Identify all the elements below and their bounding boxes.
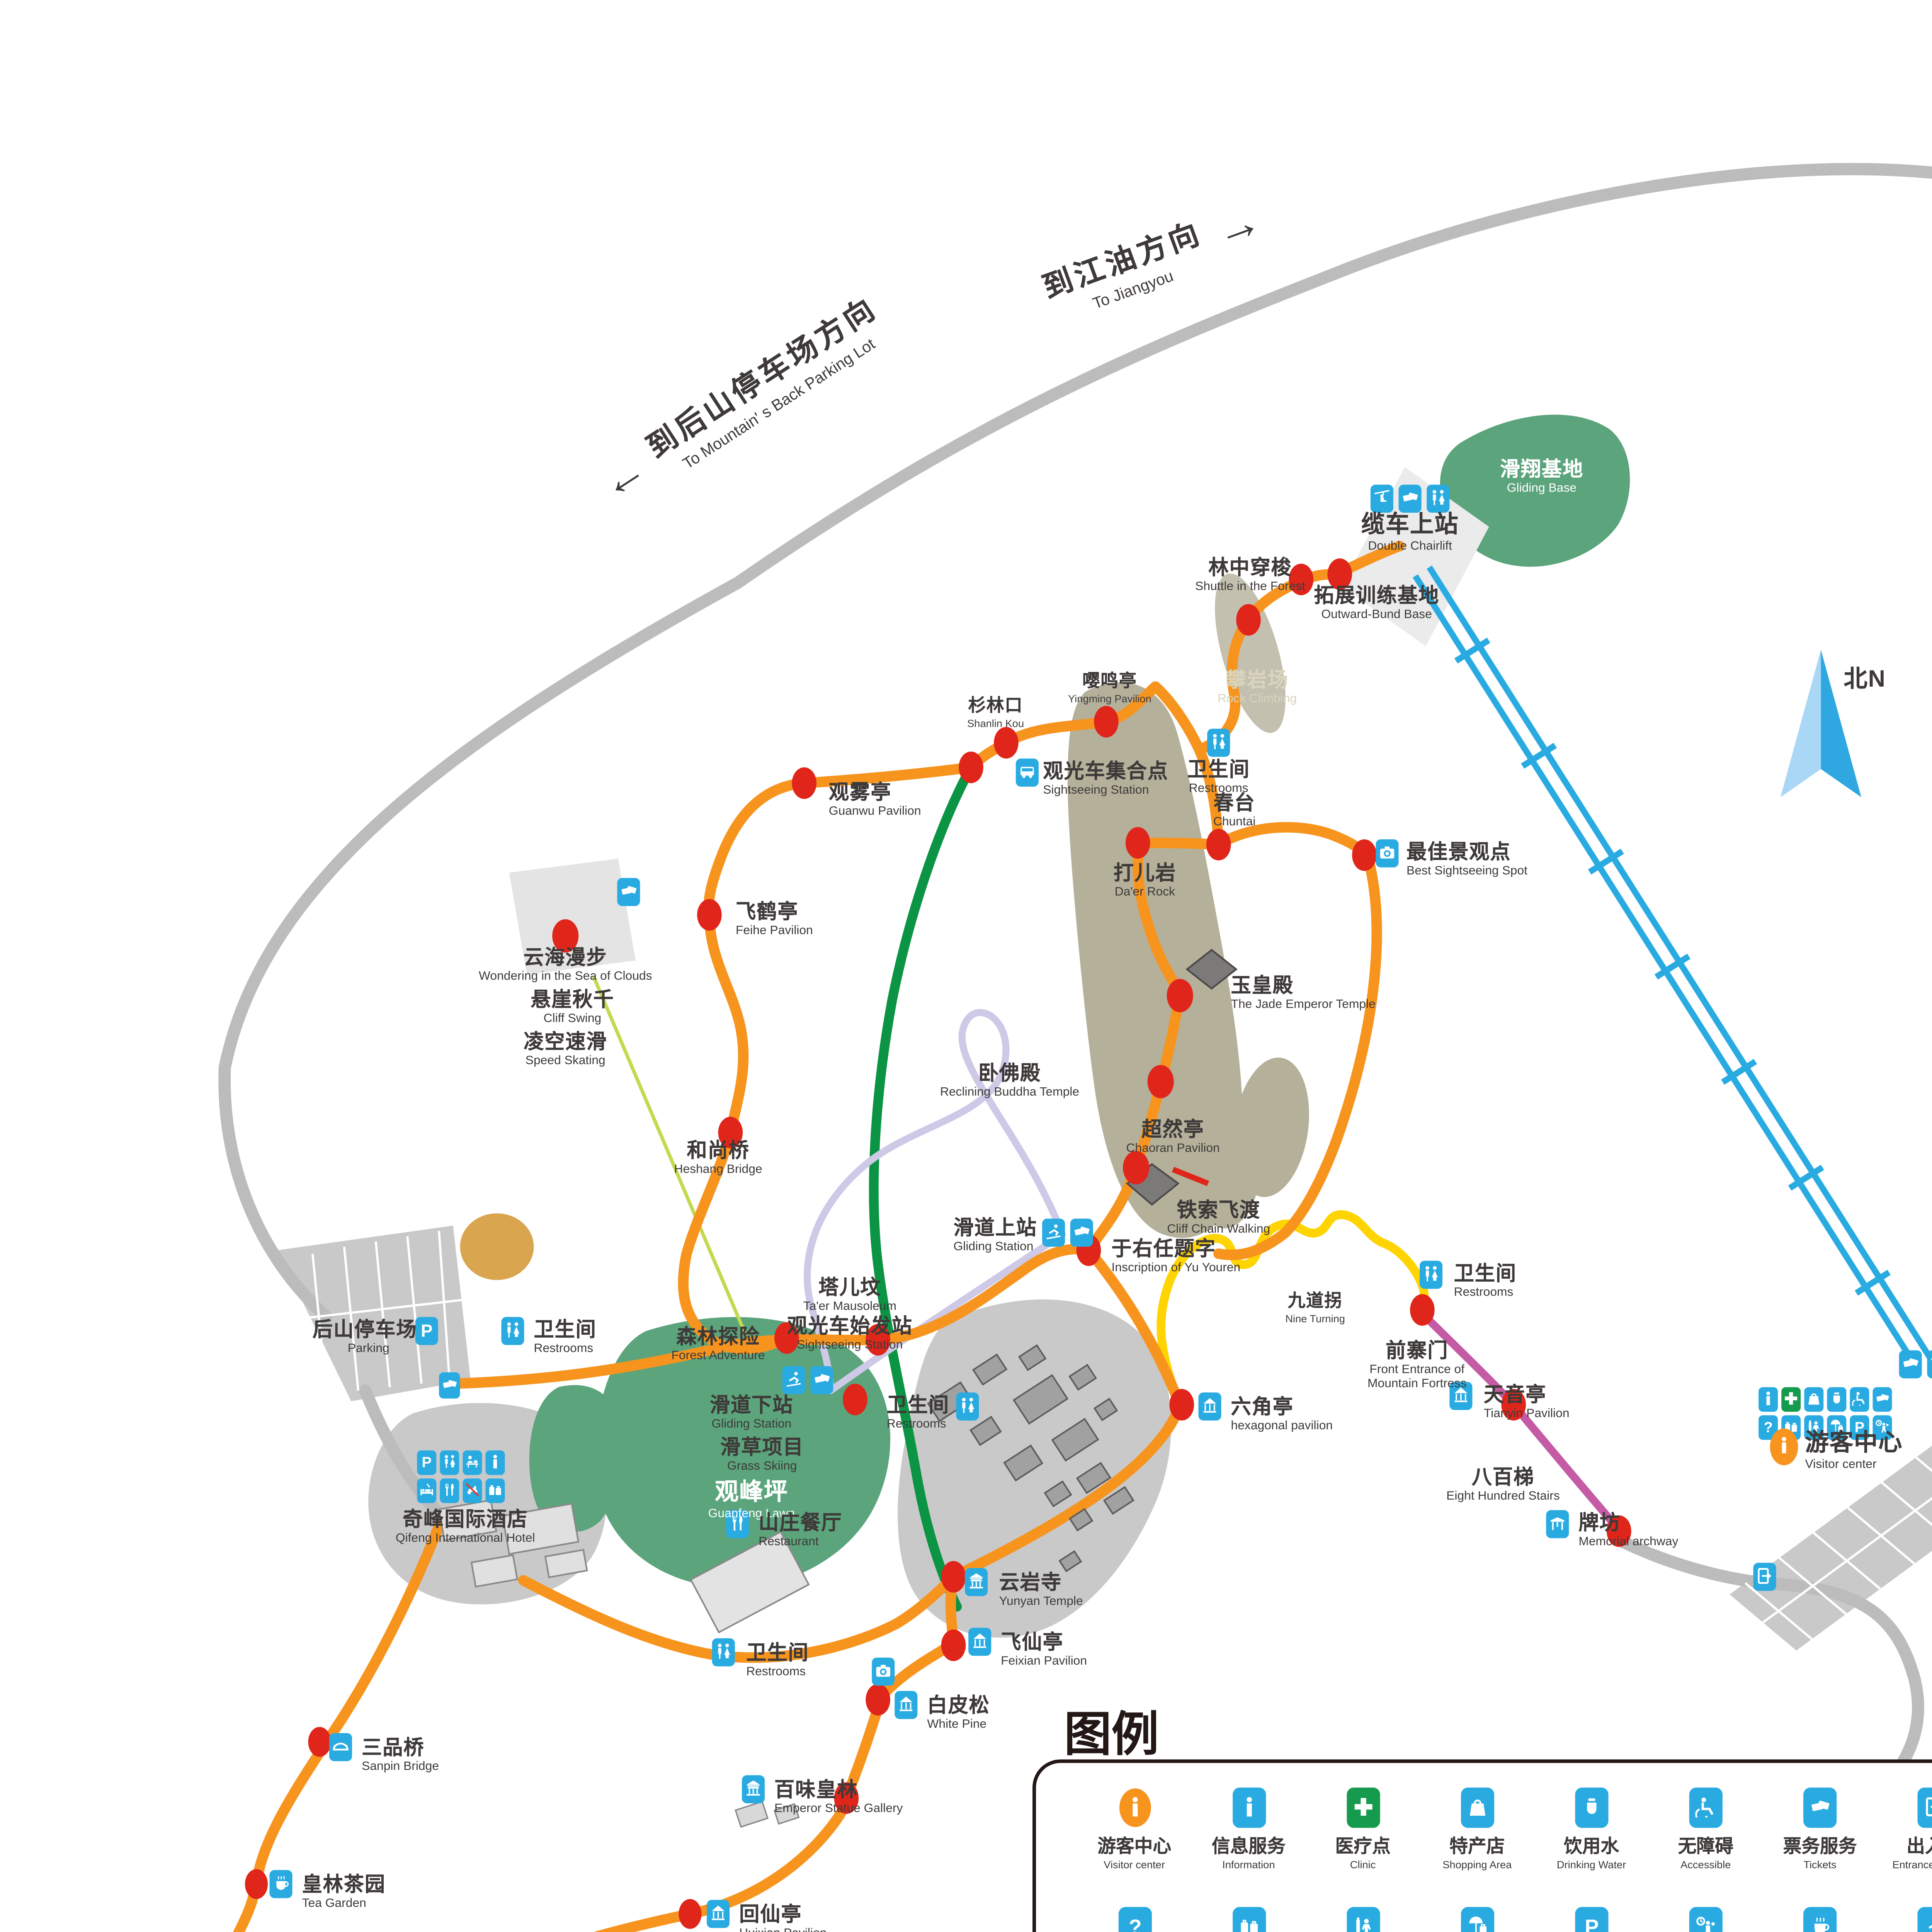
poi-tianyin: 天音亭Tianyin Pavilion: [1484, 1385, 1570, 1422]
bridge-icon: [329, 1733, 352, 1761]
restrooms-icon: [1427, 485, 1449, 513]
poi-wc-top: 卫生间Restrooms: [1187, 760, 1250, 797]
tickets-icon: [1070, 1219, 1093, 1247]
poi-wc-nine: 卫生间Restrooms: [1454, 1264, 1517, 1301]
poi-taer: 塔儿坟Ta'er Mausoleum: [803, 1278, 896, 1315]
poi-houshan-parking: 后山停车场Parking: [313, 1320, 417, 1357]
lost-and-found-icon: [1461, 1907, 1494, 1932]
poi-sightseeing-mid: 观光车集合点Sightseeing Station: [1043, 762, 1168, 799]
ski-icon: [1042, 1219, 1065, 1247]
information-icon: [1232, 1787, 1265, 1828]
entrance-exit-icon: [1753, 1563, 1776, 1591]
camera-icon: [872, 1658, 895, 1686]
poi-tea-garden: 皇林茶园Tea Garden: [302, 1875, 386, 1912]
temple-icon: [965, 1568, 988, 1596]
temple-icon: [742, 1775, 765, 1803]
poi-wc-temple: 卫生间Restrooms: [887, 1396, 949, 1433]
legend-parking: 停车场Parking: [1535, 1907, 1648, 1932]
restrooms-icon: [712, 1638, 735, 1667]
shopping-icon: [1461, 1787, 1494, 1828]
clinic-icon: [1781, 1387, 1801, 1412]
poi-wc-sw: 卫生间Restrooms: [746, 1643, 809, 1680]
poi-memorial: 牌坊Memorial archway: [1578, 1514, 1678, 1550]
poi-speed-skating: 凌空速滑Speed Skating: [524, 1032, 607, 1069]
parking-icon: [1575, 1907, 1608, 1932]
legend-waiting-area: 等候区Waiting Area: [1650, 1907, 1762, 1932]
visitor-center-icon: [1117, 1787, 1151, 1828]
hotel-icon: [417, 1478, 436, 1503]
accessible-icon: [1850, 1387, 1869, 1412]
legend-baby-care: 哺乳处Baby Care: [1307, 1907, 1419, 1932]
north-label: 北N: [1844, 667, 1886, 693]
left-luggage-icon: [1232, 1907, 1265, 1932]
poi-shanlinkou: 杉林口Shanlin Kou: [967, 699, 1024, 731]
poi-heshang: 和尚桥Heshang Bridge: [674, 1141, 762, 1178]
poi-reclining-buddha: 卧佛殿Reclining Buddha Temple: [940, 1064, 1079, 1101]
poi-emperor-gallery: 百味皇林Emperor Statue Gallery: [774, 1781, 903, 1817]
poi-forest-shuttle: 林中穿梭Shuttle in the Forest: [1195, 558, 1305, 595]
poi-jade-emperor: 玉皇殿The Jade Emperor Temple: [1231, 976, 1376, 1013]
visitor-center-icon: [1770, 1429, 1798, 1465]
parking-icon: [417, 1451, 436, 1475]
poi-huixian: 回仙亭Huixian Pavilion: [739, 1905, 827, 1932]
legend-visitor-center: 游客中心Visitor center: [1078, 1787, 1190, 1872]
chairlift-icon: [1927, 1350, 1932, 1379]
map-graphics: ? P: [0, 0, 1932, 1932]
accessible-icon: [1689, 1787, 1722, 1828]
restrooms-icon: [1207, 729, 1230, 757]
legend-entrance-exit: 出入口Entrance And Exit: [1878, 1787, 1932, 1872]
tickets-icon: [439, 1372, 460, 1398]
legend-title: 图例: [1064, 1696, 1159, 1765]
poi-gliding-top: 滑道上站Gliding Station: [954, 1219, 1037, 1255]
poi-rock-climbing: 攀岩场Rock Climbing: [1218, 671, 1297, 707]
legend-tea-garden: 皇林茶园Tea: [1764, 1907, 1876, 1932]
poi-front-entrance: 前寨门Front Entrance of Mountain Fortress: [1367, 1342, 1466, 1392]
poi-feihe: 飞鹤亭Feihe Pavilion: [736, 903, 813, 939]
poi-sightseeing-start: 观光车始发站Sightseeing Station: [787, 1317, 912, 1354]
legend-facilities-row2: 咨询台Enquiry 行李寄存Left Luggage 哺乳处Baby Care…: [1078, 1907, 1932, 1932]
poi-qifeng-hotel: 奇峰国际酒店Qifeng International Hotel: [396, 1510, 535, 1547]
pavilion-icon: [1198, 1393, 1221, 1421]
drinking-water-icon: [1575, 1787, 1608, 1828]
tickets-icon: [1399, 485, 1422, 513]
poi-best-spot: 最佳景观点Best Sightseeing Spot: [1406, 843, 1527, 879]
poi-hexagonal: 六角亭hexagonal pavilion: [1231, 1398, 1333, 1434]
enquiry-icon: [1117, 1907, 1151, 1932]
tickets-icon: [1872, 1387, 1892, 1412]
restrooms-icon: [1420, 1261, 1442, 1289]
poi-cliff-swing: 悬崖秋千Cliff Swing: [531, 990, 614, 1027]
legend-enquiry: 咨询台Enquiry: [1078, 1907, 1190, 1932]
tickets-icon: [810, 1366, 833, 1394]
bus-icon: [1016, 759, 1039, 787]
chairlift-icon: [1371, 485, 1393, 513]
baby-care-icon: [1346, 1907, 1379, 1932]
legend-tickets: 票务服务Tickets: [1764, 1787, 1876, 1872]
tickets-icon: [1899, 1350, 1922, 1379]
parking-icon: [415, 1317, 438, 1345]
poi-sanpin: 三品桥Sanpin Bridge: [362, 1738, 439, 1775]
legend-box: 游客中心Visitor center 信息服务Information 医疗点Cl…: [1032, 1759, 1932, 1932]
drinking-water-icon: [1827, 1387, 1846, 1412]
left-luggage-icon: [485, 1478, 505, 1503]
poi-visitor-center: 游客中心Visitor center: [1805, 1431, 1903, 1472]
poi-wc-houshan: 卫生间Restrooms: [534, 1320, 596, 1357]
scenic-map: ? P: [0, 0, 1932, 1932]
poi-cliff-chain: 铁索飞渡Cliff Chain Walking: [1167, 1201, 1270, 1238]
poi-guanwu: 观雾亭Guanwu Pavilion: [829, 783, 921, 820]
ski-icon: [782, 1366, 805, 1394]
poi-feixian: 飞仙亭Feixian Pavilion: [1001, 1633, 1087, 1670]
legend-facilities-row1: 游客中心Visitor center 信息服务Information 医疗点Cl…: [1078, 1787, 1932, 1872]
legend-accessible: 无障碍Accessible: [1650, 1787, 1762, 1872]
camera-icon: [1376, 839, 1398, 867]
poi-yunyan: 云岩寺Yunyan Temple: [999, 1573, 1083, 1610]
legend-clinic: 医疗点Clinic: [1307, 1787, 1419, 1872]
tea-icon: [270, 1870, 293, 1898]
archway-icon: [1546, 1510, 1569, 1538]
legend-gliding-bottom: 滑道下站Gliding Station: [1878, 1907, 1932, 1932]
restrooms-icon: [440, 1451, 459, 1475]
waiting-area-icon: [1689, 1907, 1722, 1932]
poi-cable-top: 缆车上站Double Chairlift: [1361, 513, 1459, 553]
poi-restaurant: 山庄餐厅Restaurant: [759, 1514, 842, 1550]
pavilion-icon: [895, 1691, 917, 1719]
clinic-icon: [1346, 1787, 1379, 1828]
poi-nine-turning: 九道拐Nine Turning: [1285, 1294, 1345, 1326]
poi-yu-youren: 于右任题字Inscription of Yu Youren: [1112, 1240, 1241, 1276]
restrooms-icon: [956, 1393, 979, 1421]
legend-information: 信息服务Information: [1192, 1787, 1305, 1872]
ski-icon: [1918, 1907, 1932, 1932]
poi-outward-bound: 拓展训练基地Outward-Bund Base: [1314, 587, 1439, 623]
poi-gliding-bottom: 滑道下站Gliding Station: [710, 1396, 793, 1433]
information-icon: [485, 1451, 505, 1475]
restaurant-icon: [440, 1478, 459, 1503]
poi-gliding-base: 滑翔基地Gliding Base: [1500, 460, 1583, 497]
no-pets-icon: [463, 1478, 482, 1503]
legend-drinking-water: 饮用水Drinking Water: [1535, 1787, 1648, 1872]
tickets-icon: [617, 878, 640, 906]
poi-white-pine: 白皮松White Pine: [927, 1696, 990, 1733]
poi-daer-rock: 打儿岩Da'er Rock: [1114, 864, 1176, 901]
legend-shopping: 特产店Shopping Area: [1421, 1787, 1533, 1872]
poi-forest-adventure: 森林探险Forest Adventure: [671, 1327, 765, 1364]
poi-yingming: 嘤鸣亭Yingming Pavilion: [1068, 674, 1151, 706]
pavilion-icon: [968, 1628, 991, 1656]
poi-grass-skiing: 滑草项目Grass Skiing: [720, 1438, 804, 1475]
pavilion-icon: [707, 1900, 730, 1928]
poi-sea-clouds: 云海漫步Wondering in the Sea of Clouds: [479, 948, 652, 985]
poi-chuntai: 春台Chuntai: [1213, 794, 1256, 830]
poi-chaoran: 超然亭Chaoran Pavilion: [1126, 1120, 1219, 1157]
legend-left-luggage: 行李寄存Left Luggage: [1192, 1907, 1305, 1932]
tickets-icon: [1803, 1787, 1837, 1828]
shopping-icon: [1804, 1387, 1823, 1412]
restrooms-icon: [501, 1317, 524, 1345]
entrance-exit-icon: [1918, 1787, 1932, 1828]
poi-eight-hundred: 八百梯Eight Hundred Stairs: [1446, 1468, 1560, 1505]
reception-icon: [463, 1451, 482, 1475]
information-icon: [1759, 1387, 1778, 1412]
tea-icon: [1803, 1907, 1837, 1932]
legend-lost-found: 失物招领Lost And Found: [1421, 1907, 1533, 1932]
